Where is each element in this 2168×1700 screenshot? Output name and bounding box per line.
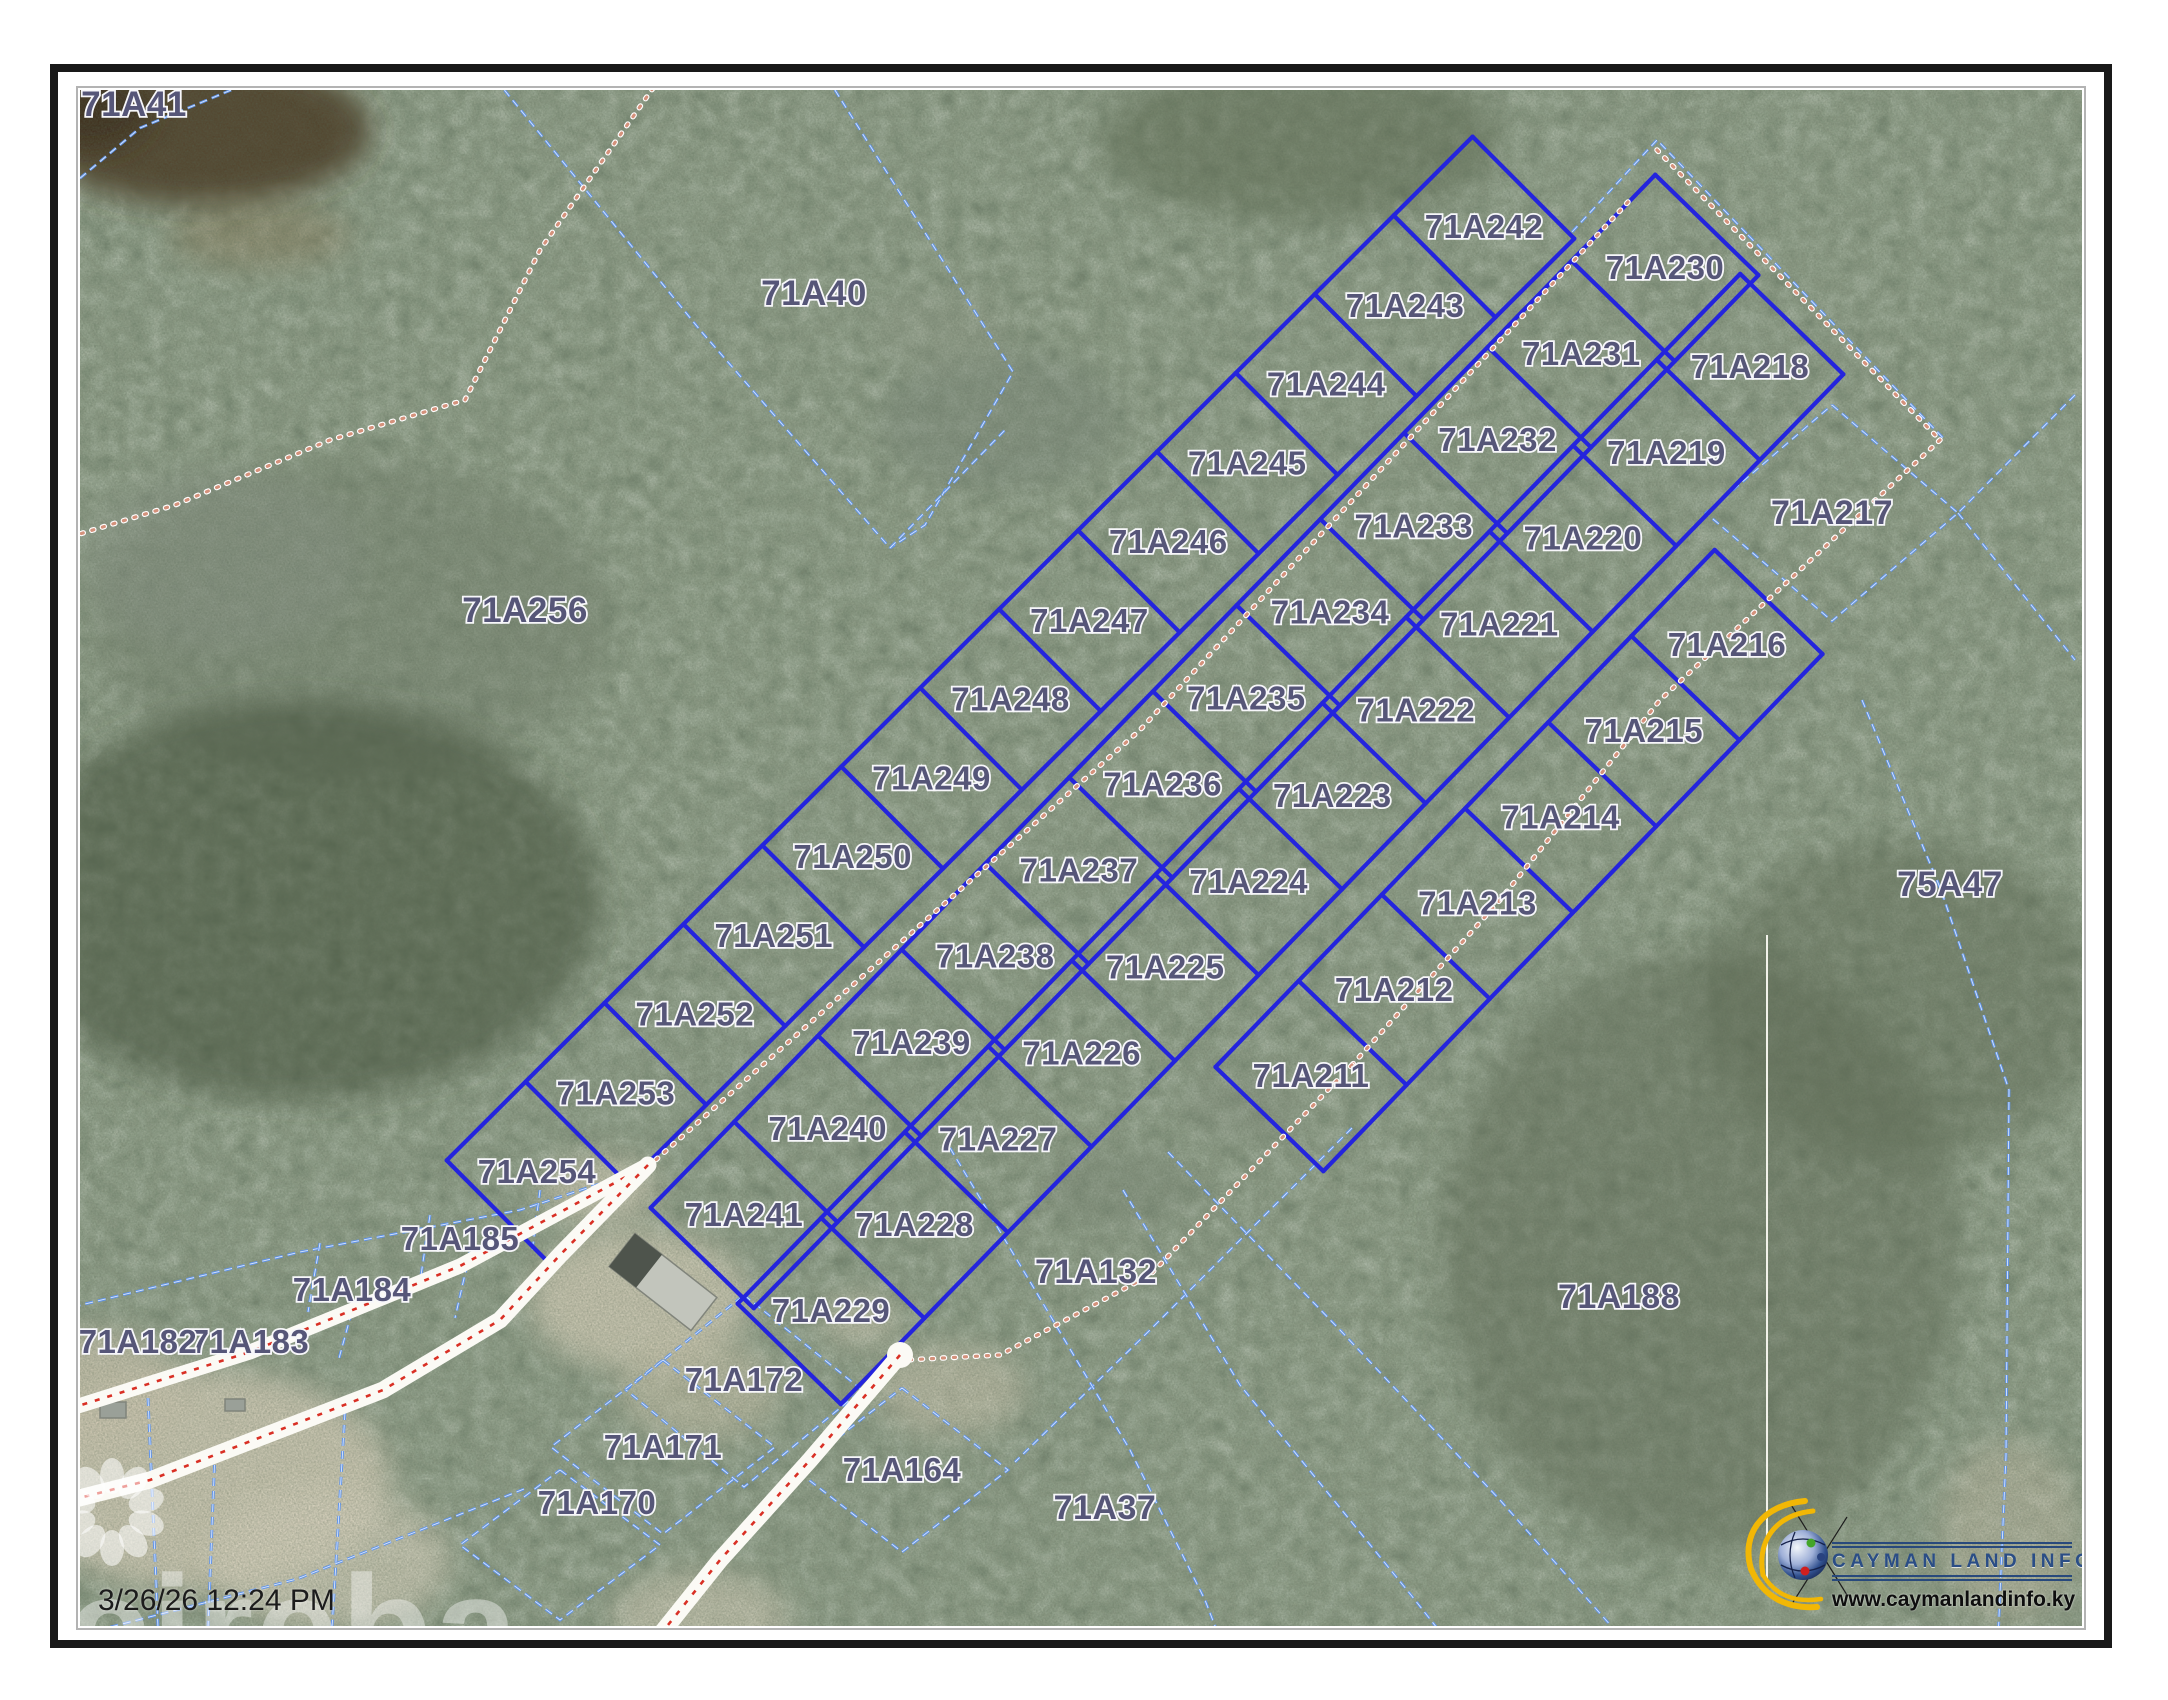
parcel-label-71A37: 71A37 — [1054, 1489, 1157, 1527]
parcel-label-71A172: 71A172 — [685, 1361, 804, 1398]
parcel-label-71A248: 71A248 — [951, 681, 1070, 718]
parcel-label-71A233: 71A233 — [1355, 507, 1474, 544]
timestamp: 3/26/26 12:24 PM — [98, 1584, 335, 1618]
parcel-label-71A40: 71A40 — [761, 274, 867, 313]
parcel-label-71A242: 71A242 — [1425, 208, 1544, 245]
parcel-label-71A234: 71A234 — [1271, 593, 1390, 630]
parcel-label-71A221: 71A221 — [1440, 605, 1559, 642]
parcel-label-71A238: 71A238 — [936, 938, 1055, 975]
parcel-label-71A164: 71A164 — [843, 1451, 962, 1488]
parcel-label-71A213: 71A213 — [1418, 885, 1537, 922]
map-area: 71A24271A24371A24471A24571A24671A24771A2… — [80, 90, 2082, 1626]
parcel-label-71A224: 71A224 — [1189, 863, 1308, 900]
parcel-label-71A220: 71A220 — [1524, 520, 1643, 557]
parcel-label-71A170: 71A170 — [538, 1484, 657, 1521]
parcel-label-71A211: 71A211 — [1253, 1057, 1370, 1094]
parcel-label-71A244: 71A244 — [1267, 366, 1386, 403]
parcel-label-71A217: 71A217 — [1771, 494, 1893, 532]
parcel-label-71A245: 71A245 — [1188, 444, 1307, 481]
parcel-label-71A212: 71A212 — [1335, 971, 1454, 1008]
parcel-label-71A226: 71A226 — [1022, 1035, 1141, 1072]
parcel-label-71A235: 71A235 — [1187, 679, 1306, 716]
parcel-label-71A214: 71A214 — [1501, 798, 1620, 835]
parcel-label-71A250: 71A250 — [793, 838, 912, 875]
parcel-label-71A246: 71A246 — [1109, 523, 1228, 560]
parcel-label-71A249: 71A249 — [872, 759, 991, 796]
parcel-label-71A182: 71A182 — [80, 1323, 197, 1360]
parcel-label-71A241: 71A241 — [685, 1196, 804, 1233]
parcel-label-75A47: 75A47 — [1897, 865, 2003, 904]
parcel-label-71A240: 71A240 — [768, 1110, 887, 1147]
cadastral-map-export: 71A24271A24371A24471A24571A24671A24771A2… — [0, 0, 2168, 1700]
parcel-label-71A254: 71A254 — [478, 1153, 597, 1190]
parcel-label-71A41: 71A41 — [81, 90, 187, 124]
parcel-label-71A247: 71A247 — [1030, 602, 1149, 639]
building — [225, 1399, 245, 1411]
parcel-label-71A230: 71A230 — [1606, 249, 1725, 286]
parcel-label-71A215: 71A215 — [1584, 712, 1703, 749]
parcel-label-71A188: 71A188 — [1558, 1278, 1680, 1316]
parcel-label-71A228: 71A228 — [855, 1206, 974, 1243]
parcel-label-71A132: 71A132 — [1035, 1253, 1157, 1291]
parcel-label-71A243: 71A243 — [1346, 287, 1465, 324]
parcel-label-71A216: 71A216 — [1668, 626, 1787, 663]
parcel-label-71A185: 71A185 — [401, 1220, 520, 1257]
parcel-label-71A183: 71A183 — [191, 1323, 310, 1360]
parcel-label-71A256: 71A256 — [462, 591, 588, 630]
parcel-label-71A225: 71A225 — [1106, 949, 1225, 986]
parcel-label-71A251: 71A251 — [714, 917, 833, 954]
parcel-label-71A252: 71A252 — [636, 996, 755, 1033]
aerial-parcel-map: 71A24271A24371A24471A24571A24671A24771A2… — [80, 90, 2082, 1626]
parcel-label-71A236: 71A236 — [1103, 766, 1222, 803]
parcel-label-71A222: 71A222 — [1357, 691, 1476, 728]
parcel-label-71A239: 71A239 — [852, 1024, 971, 1061]
parcel-label-71A229: 71A229 — [772, 1292, 891, 1329]
parcel-label-71A223: 71A223 — [1273, 777, 1392, 814]
parcel-label-71A184: 71A184 — [293, 1271, 412, 1308]
parcel-label-71A171: 71A171 — [604, 1428, 723, 1465]
parcel-label-71A232: 71A232 — [1438, 421, 1557, 458]
parcel-label-71A237: 71A237 — [1020, 852, 1139, 889]
parcel-label-71A253: 71A253 — [557, 1074, 676, 1111]
parcel-label-71A219: 71A219 — [1607, 434, 1726, 471]
parcel-label-71A227: 71A227 — [939, 1120, 1058, 1157]
parcel-label-71A218: 71A218 — [1691, 348, 1810, 385]
parcel-label-71A231: 71A231 — [1522, 335, 1641, 372]
